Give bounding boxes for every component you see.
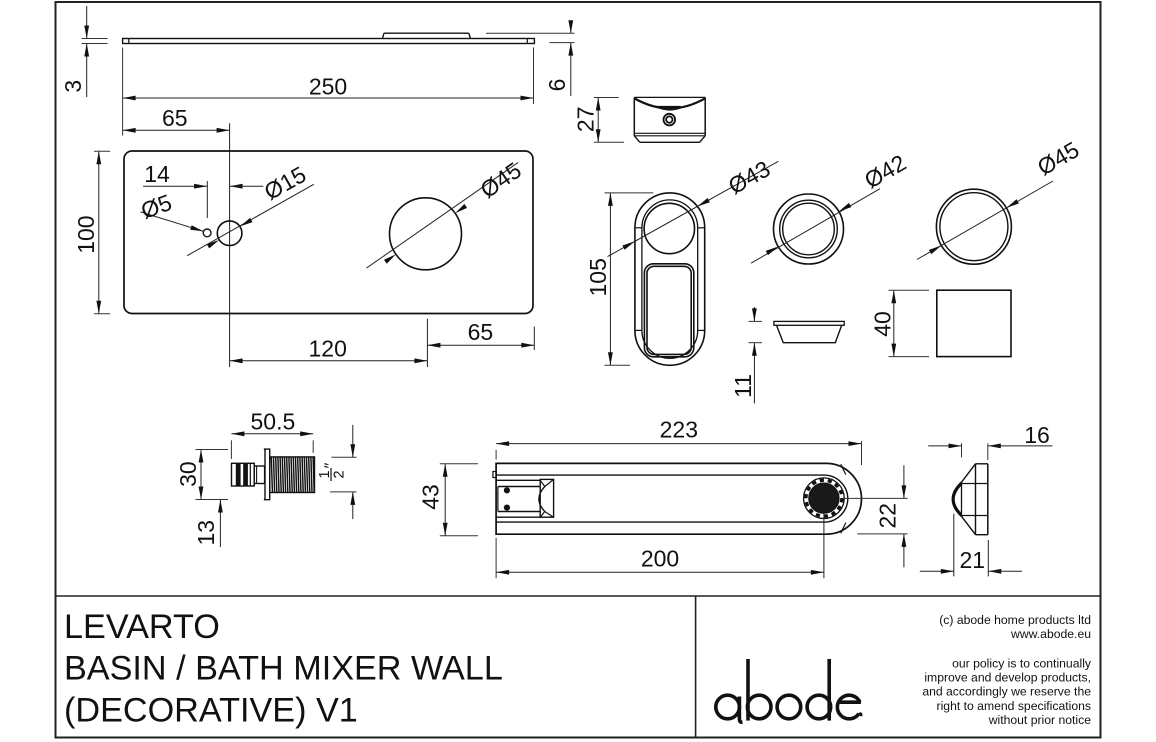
svg-text:6: 6 — [544, 79, 570, 92]
svg-text:223: 223 — [660, 417, 698, 443]
svg-text:3: 3 — [60, 80, 86, 93]
svg-text:100: 100 — [73, 215, 99, 253]
svg-text:14: 14 — [144, 161, 170, 187]
svg-text:(c) abode home products ltd: (c) abode home products ltd — [939, 613, 1091, 627]
svg-text:and accordingly we reserve the: and accordingly we reserve the — [922, 685, 1091, 699]
svg-text:40: 40 — [869, 311, 895, 337]
svg-text:(DECORATIVE) V1: (DECORATIVE) V1 — [64, 692, 358, 730]
svg-text:200: 200 — [641, 546, 679, 572]
svg-text:BASIN / BATH MIXER WALL: BASIN / BATH MIXER WALL — [64, 650, 503, 688]
svg-text:www.abode.eu: www.abode.eu — [1010, 627, 1091, 641]
svg-text:16: 16 — [1024, 422, 1050, 448]
svg-text:43: 43 — [417, 484, 443, 510]
svg-text:21: 21 — [960, 547, 986, 573]
svg-text:30: 30 — [175, 461, 201, 487]
svg-text:″: ″ — [323, 462, 340, 468]
svg-text:LEVARTO: LEVARTO — [64, 608, 220, 646]
svg-text:without prior notice: without prior notice — [988, 713, 1092, 727]
svg-text:50.5: 50.5 — [251, 408, 296, 434]
svg-text:105: 105 — [585, 258, 611, 296]
svg-text:22: 22 — [875, 503, 901, 529]
svg-text:right to amend specifications: right to amend specifications — [937, 699, 1091, 713]
svg-text:2: 2 — [332, 470, 348, 478]
svg-text:65: 65 — [162, 105, 188, 131]
svg-text:65: 65 — [468, 319, 494, 345]
svg-text:our policy is to continually: our policy is to continually — [952, 657, 1092, 671]
svg-text:13: 13 — [193, 520, 219, 546]
svg-text:improve and develop products,: improve and develop products, — [924, 671, 1091, 685]
svg-text:250: 250 — [309, 73, 347, 99]
svg-text:11: 11 — [730, 374, 756, 398]
svg-text:120: 120 — [309, 335, 347, 361]
svg-text:27: 27 — [573, 107, 599, 133]
